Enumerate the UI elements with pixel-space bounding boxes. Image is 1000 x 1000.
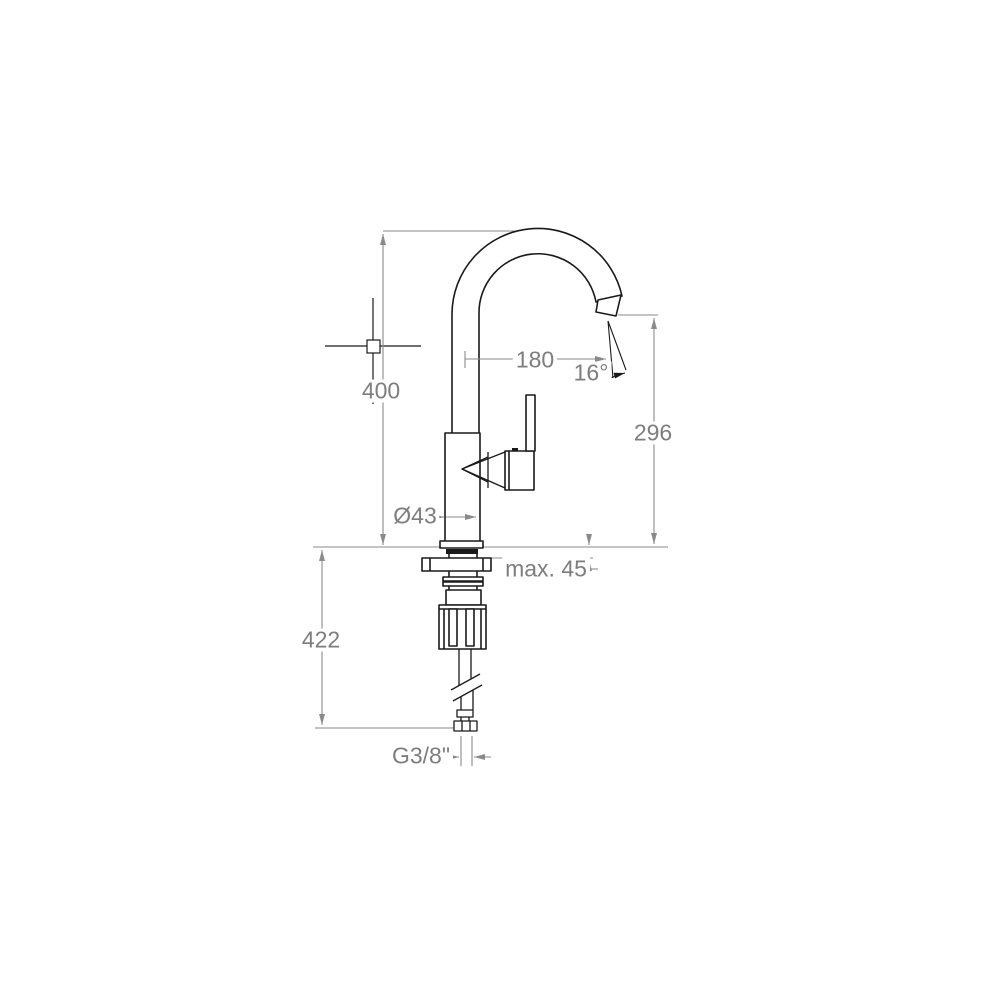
- fixing-block: [446, 590, 481, 605]
- base-flange: [440, 541, 483, 548]
- dim-label-body-diameter: Ø43: [390, 505, 439, 528]
- faucet-body: [445, 433, 480, 542]
- handle-index-mark: [512, 448, 518, 451]
- washer-ring-1: [443, 577, 483, 581]
- dim-label-spout-reach: 180: [513, 349, 557, 372]
- base-gasket: [446, 549, 478, 554]
- supply-hose: [451, 649, 482, 710]
- dim-label-supply-connection: G3/8": [389, 745, 453, 768]
- dim-max45-arrows: [589, 535, 598, 570]
- dim-label-outlet-height: 296: [631, 422, 675, 445]
- faucet-technical-drawing: [0, 0, 1000, 1000]
- dim-label-total-height: 400: [359, 380, 403, 403]
- lever-handle: [526, 395, 535, 451]
- dim-label-max-deck-thickness: max. 45: [502, 558, 590, 581]
- dim-label-spout-angle: 16°: [571, 362, 612, 385]
- spout-gooseneck: [452, 228, 622, 434]
- dim-label-under-deck-length: 422: [299, 629, 343, 652]
- castellated-nut: [439, 605, 486, 649]
- technical-drawing-canvas: 400 180 16° 296 Ø43 max. 45 422 G3/8": [0, 0, 1000, 1000]
- hose-end-fitting: [454, 710, 477, 731]
- faucet-outline: [422, 228, 626, 731]
- washer-ring-2: [443, 582, 483, 586]
- mounting-plate: [422, 558, 491, 571]
